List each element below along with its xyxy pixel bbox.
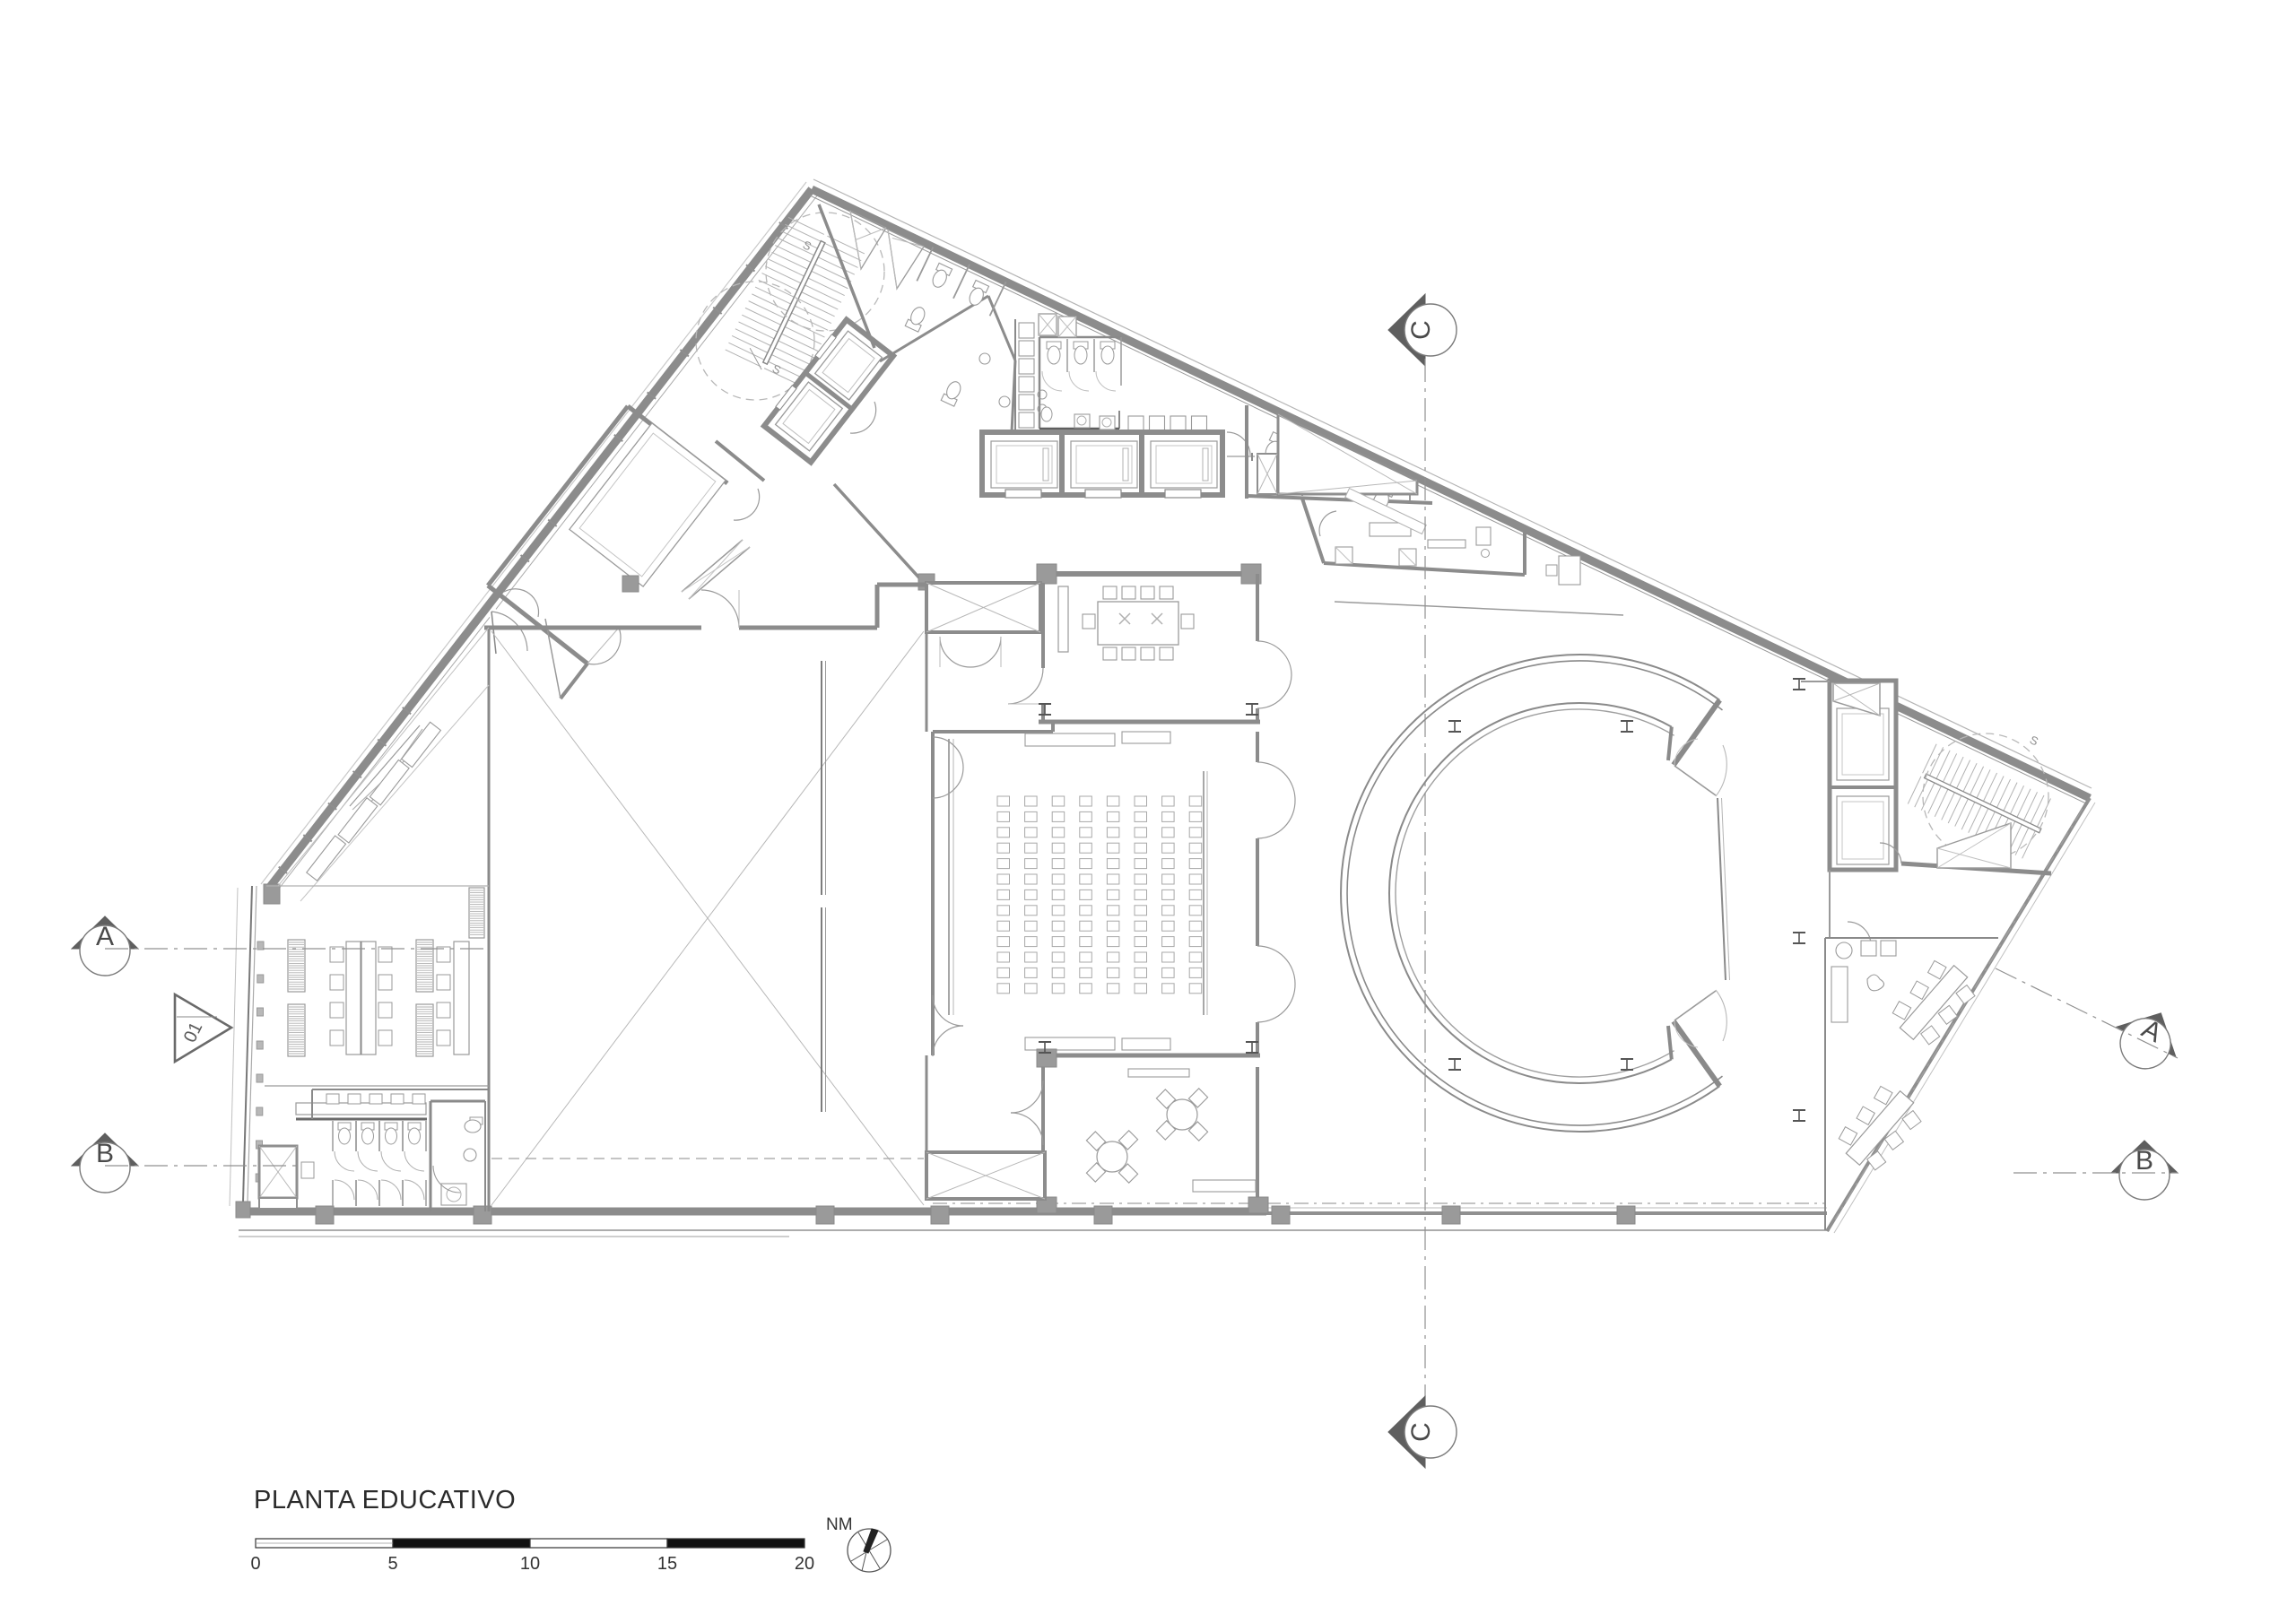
svg-text:B: B: [96, 1139, 114, 1168]
svg-text:C: C: [1406, 320, 1436, 340]
svg-text:NM: NM: [826, 1515, 853, 1534]
svg-text:C: C: [1406, 1422, 1436, 1442]
svg-text:5: 5: [387, 1554, 397, 1574]
svg-text:20: 20: [795, 1554, 814, 1574]
svg-text:0: 0: [250, 1554, 260, 1574]
svg-text:15: 15: [657, 1554, 677, 1574]
svg-text:PLANTA EDUCATIVO: PLANTA EDUCATIVO: [254, 1486, 516, 1515]
svg-text:10: 10: [520, 1554, 540, 1574]
svg-text:B: B: [2135, 1146, 2153, 1176]
svg-text:A: A: [96, 922, 114, 951]
